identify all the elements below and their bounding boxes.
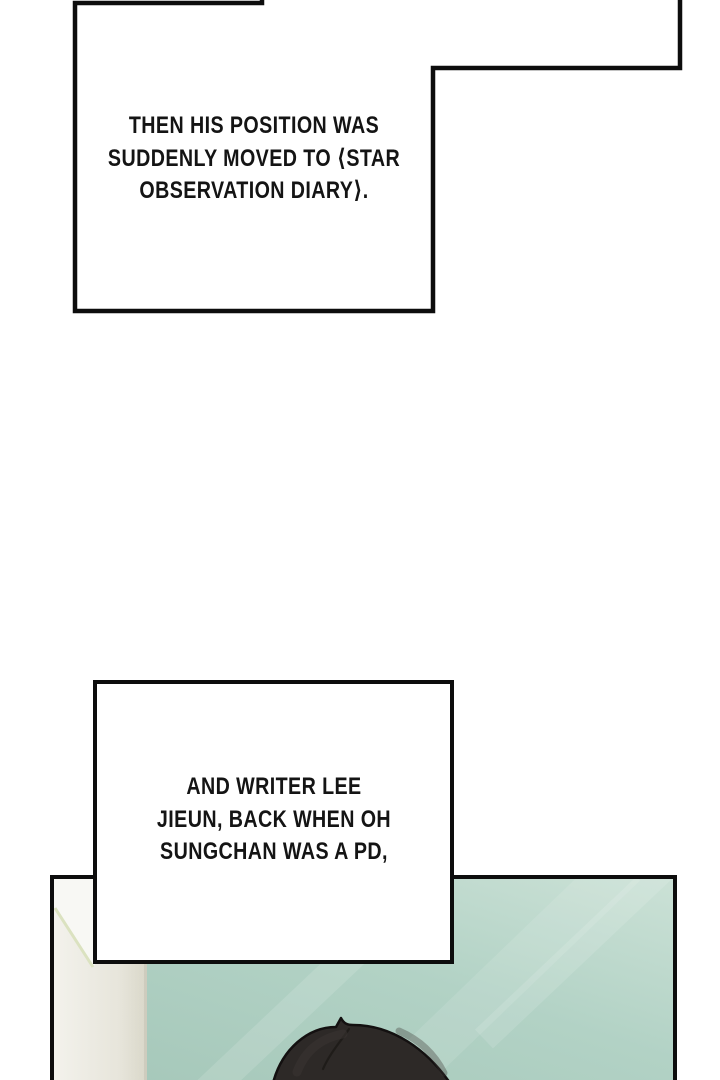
caption-1-line: SUDDENLY MOVED TO ⟨STAR xyxy=(107,143,401,176)
caption-2-line: SUNGCHAN WAS A PD, xyxy=(129,836,419,869)
caption-2-text: AND WRITER LEE JIEUN, BACK WHEN OH SUNGC… xyxy=(129,771,419,869)
caption-2-line: JIEUN, BACK WHEN OH xyxy=(129,804,419,837)
caption-1-text: THEN HIS POSITION WAS SUDDENLY MOVED TO … xyxy=(107,110,401,208)
caption-1-line: OBSERVATION DIARY⟩. xyxy=(107,175,401,208)
caption-2-line: AND WRITER LEE xyxy=(129,771,419,804)
comic-page: THEN HIS POSITION WAS SUDDENLY MOVED TO … xyxy=(0,0,720,1080)
caption-1-line: THEN HIS POSITION WAS xyxy=(107,110,401,143)
